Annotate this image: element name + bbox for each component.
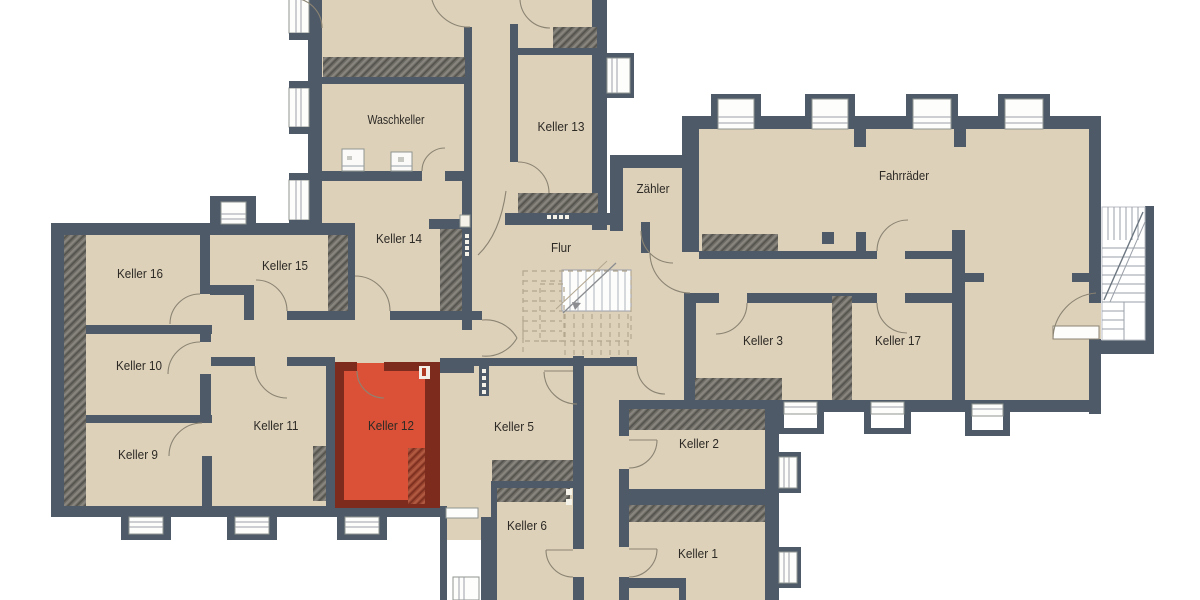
svg-text:Keller 12: Keller 12 bbox=[368, 419, 414, 433]
svg-text:Keller 14: Keller 14 bbox=[376, 232, 422, 246]
svg-text:Fahrräder: Fahrräder bbox=[879, 169, 929, 183]
svg-text:Zähler: Zähler bbox=[637, 182, 670, 196]
svg-text:Keller 10: Keller 10 bbox=[116, 359, 162, 373]
svg-text:Keller 2: Keller 2 bbox=[679, 437, 719, 451]
svg-text:Keller 17: Keller 17 bbox=[875, 334, 921, 348]
svg-text:Waschkeller: Waschkeller bbox=[368, 113, 425, 127]
svg-text:Keller 6: Keller 6 bbox=[507, 519, 547, 533]
svg-text:Keller 11: Keller 11 bbox=[254, 419, 299, 433]
svg-text:Keller 15: Keller 15 bbox=[262, 259, 308, 273]
svg-text:Keller 16: Keller 16 bbox=[117, 267, 163, 281]
svg-text:Keller 1: Keller 1 bbox=[678, 547, 718, 561]
svg-text:Keller 9: Keller 9 bbox=[118, 448, 158, 462]
svg-text:Keller 3: Keller 3 bbox=[743, 334, 783, 348]
svg-text:Flur: Flur bbox=[551, 241, 571, 255]
svg-text:Keller 13: Keller 13 bbox=[538, 120, 585, 134]
svg-text:Keller 5: Keller 5 bbox=[494, 420, 534, 434]
